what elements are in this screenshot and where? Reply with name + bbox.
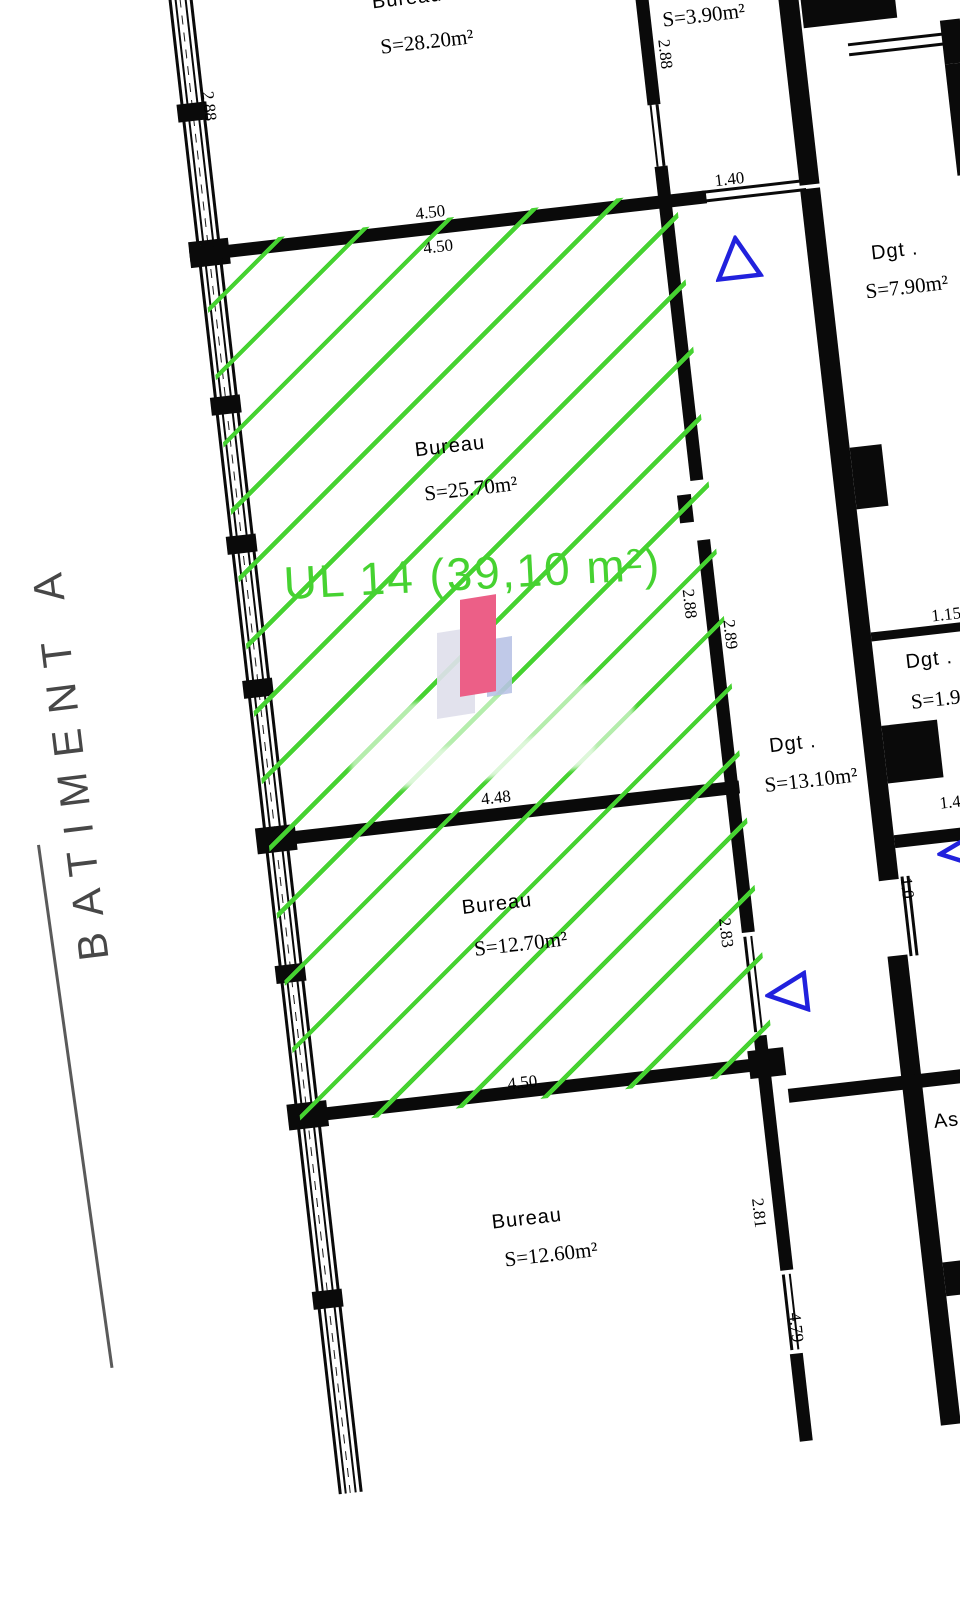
core-junction-block	[793, 0, 898, 28]
room-area-bureau-top: S=28.20m²	[379, 24, 475, 59]
room-name-bureau-top: Bureau	[371, 0, 444, 14]
dim-289-corridor-wall: 2.89	[718, 619, 741, 651]
dim-281: 2.81	[747, 1197, 770, 1229]
topright-wall	[945, 62, 960, 175]
room-area-bureau-2570: S=25.70m²	[423, 471, 519, 506]
ascenseur-top-wall	[788, 1055, 960, 1103]
unit-label: UL 14 (39,10 m²)	[282, 536, 662, 610]
room-area-bureau-1260: S=12.60m²	[503, 1237, 599, 1272]
corridor-right-wall-upper	[755, 0, 819, 186]
wall-pilaster	[881, 720, 943, 784]
room-name-bureau-1270: Bureau	[461, 889, 534, 920]
unit-right-wall-opening	[689, 479, 711, 540]
facade-mullion	[210, 394, 242, 415]
dim-448: 4.48	[480, 786, 512, 809]
room-area-dgt-top: S=3.90m²	[661, 0, 746, 33]
dim-115: 1.15	[930, 603, 960, 626]
facade-wall-line	[169, 0, 357, 1493]
dim-450-top-a: 4.50	[414, 201, 446, 224]
facade-mullion	[275, 963, 307, 984]
room-name-dgt-19: Dgt .	[904, 646, 954, 674]
facade-wall-line	[153, 0, 341, 1494]
facade-wall-line	[174, 0, 362, 1492]
door-triangle-right-edge-icon	[935, 830, 960, 875]
facade-wall-axis	[164, 0, 351, 1493]
building-label: BATIMENT A	[10, 458, 131, 1059]
dim-450-top-b: 4.50	[422, 235, 454, 258]
room-name-dgt-790: Dgt .	[870, 237, 920, 265]
room-area-bureau-1270: S=12.70m²	[473, 926, 569, 961]
facade-mullion	[226, 534, 258, 555]
dim-450-bottom: 4.50	[507, 1071, 539, 1094]
facade-mullion	[312, 1289, 344, 1310]
facade-mullion	[242, 678, 274, 699]
room-name-ascenseur: As	[933, 1108, 960, 1134]
unit-right-wall	[659, 206, 813, 1441]
dim-479: 4.79	[784, 1312, 807, 1344]
door-triangle-up-icon	[711, 233, 764, 284]
dim-288-facade: 2.88	[197, 90, 220, 122]
floor-plan-canvas: UL 14 (39,10 m²) Bureau S=28.20m² Dgt . …	[110, 0, 960, 1599]
room-area-dgt-790: S=7.90m²	[864, 270, 949, 304]
room-name-dgt-1310: Dgt .	[768, 730, 818, 758]
room-name-bureau-1260: Bureau	[491, 1204, 564, 1235]
corridor-right-wall	[800, 187, 960, 1425]
room-area-dgt-1310: S=13.10m²	[763, 763, 859, 798]
dim-140-corridor: 1.40	[714, 168, 746, 191]
dim-288-room390: 2.88	[653, 38, 676, 70]
floor-plan-page: { "drawing": { "type": "architectural-fl…	[0, 0, 960, 1368]
room-area-dgt-19: S=1.9	[910, 684, 960, 714]
door-triangle-left-icon	[763, 970, 811, 1017]
dim-140-right-edge: 1.40	[939, 791, 960, 814]
dim-288-unit-wall: 2.88	[678, 588, 701, 620]
wall-step	[942, 1259, 960, 1296]
dim-283: 2.83	[714, 917, 737, 949]
topright-wall-cap	[940, 19, 960, 65]
room-name-bureau-2570: Bureau	[414, 432, 487, 463]
dim-10: 1.0	[896, 876, 918, 899]
wall-pilaster	[850, 444, 889, 509]
